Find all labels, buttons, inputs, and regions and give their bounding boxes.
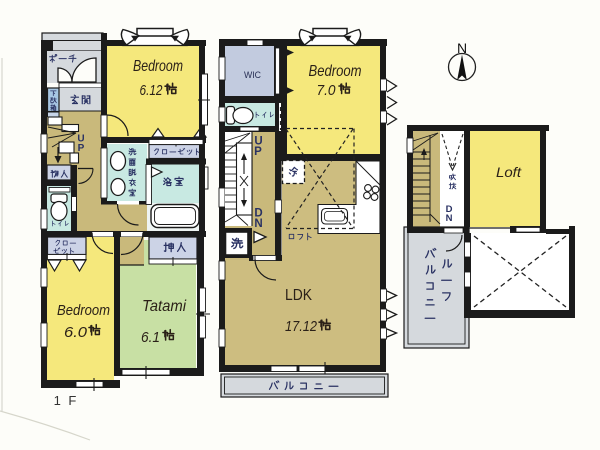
svg-text:LDK: LDK: [285, 287, 312, 304]
svg-text:6.0: 6.0: [64, 324, 88, 341]
svg-text:P: P: [78, 143, 85, 154]
svg-text:P: P: [254, 146, 262, 158]
svg-text:WIC: WIC: [244, 70, 261, 81]
svg-text:Tatami: Tatami: [142, 298, 186, 315]
svg-text:7.0: 7.0: [317, 82, 337, 99]
svg-text:N: N: [457, 40, 467, 56]
svg-text:Loft: Loft: [496, 164, 522, 180]
svg-text:Bedroom: Bedroom: [309, 63, 362, 80]
svg-text:Bedroom: Bedroom: [133, 58, 183, 75]
svg-text:6.12: 6.12: [140, 82, 164, 99]
svg-text:17.12: 17.12: [285, 318, 318, 335]
svg-text:1 F: 1 F: [54, 393, 79, 408]
svg-text:6.1: 6.1: [141, 329, 160, 346]
svg-text:Bedroom: Bedroom: [57, 302, 110, 319]
svg-text:N: N: [446, 213, 453, 224]
svg-text:N: N: [254, 218, 262, 230]
